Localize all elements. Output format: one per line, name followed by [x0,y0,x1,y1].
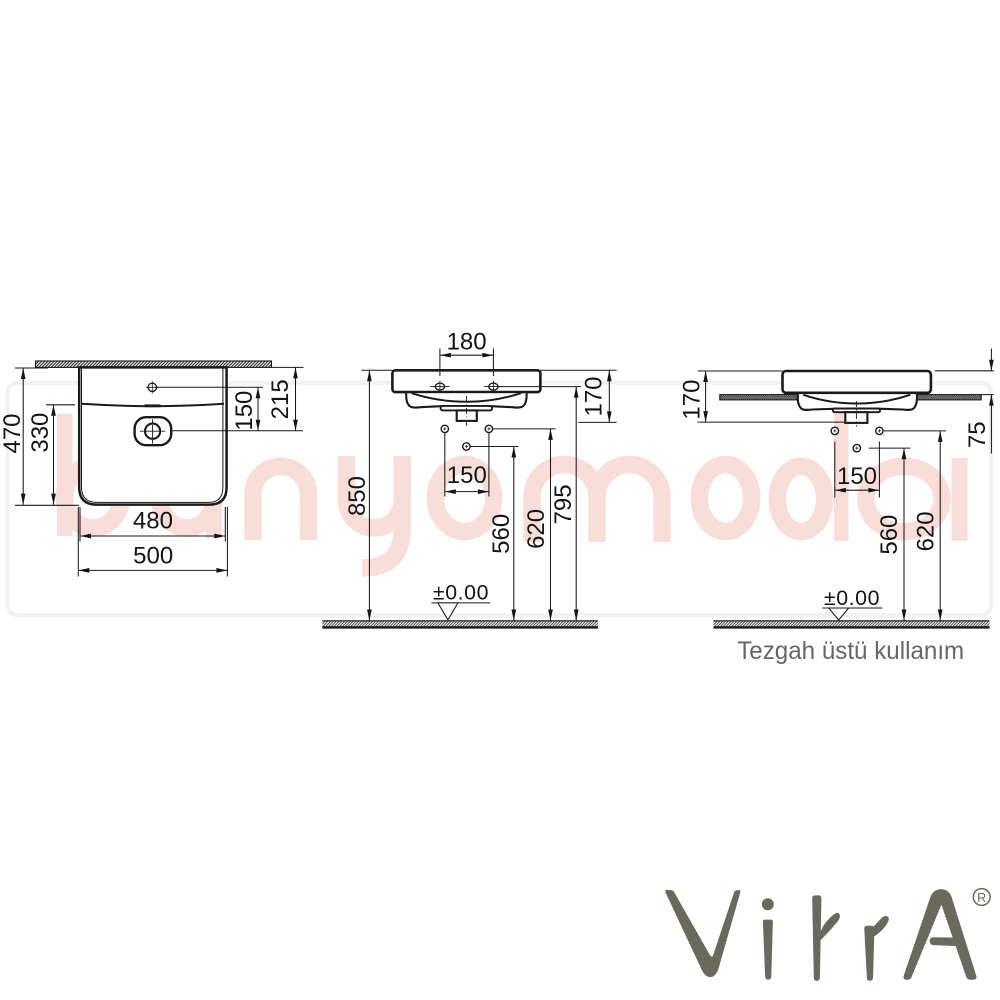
svg-text:480: 480 [133,508,173,535]
svg-text:620: 620 [523,509,550,549]
svg-text:500: 500 [133,543,173,570]
svg-text:850: 850 [344,476,371,516]
svg-text:150: 150 [447,462,487,489]
svg-text:560: 560 [876,515,903,555]
svg-text:470: 470 [0,413,26,453]
svg-text:180: 180 [447,329,487,356]
svg-text:215: 215 [267,379,294,419]
svg-text:560: 560 [488,514,515,554]
svg-text:330: 330 [27,413,54,453]
svg-text:±0.00: ±0.00 [433,581,489,605]
svg-text:170: 170 [679,380,706,420]
svg-text:150: 150 [231,391,258,431]
svg-text:150: 150 [837,463,877,490]
svg-text:795: 795 [550,484,577,524]
svg-text:±0.00: ±0.00 [824,586,880,610]
svg-text:620: 620 [913,511,940,551]
svg-text:R: R [977,891,986,905]
svg-text:170: 170 [581,376,608,416]
svg-text:Tezgah üstü kullanım: Tezgah üstü kullanım [737,638,964,665]
svg-text:75: 75 [964,421,991,448]
